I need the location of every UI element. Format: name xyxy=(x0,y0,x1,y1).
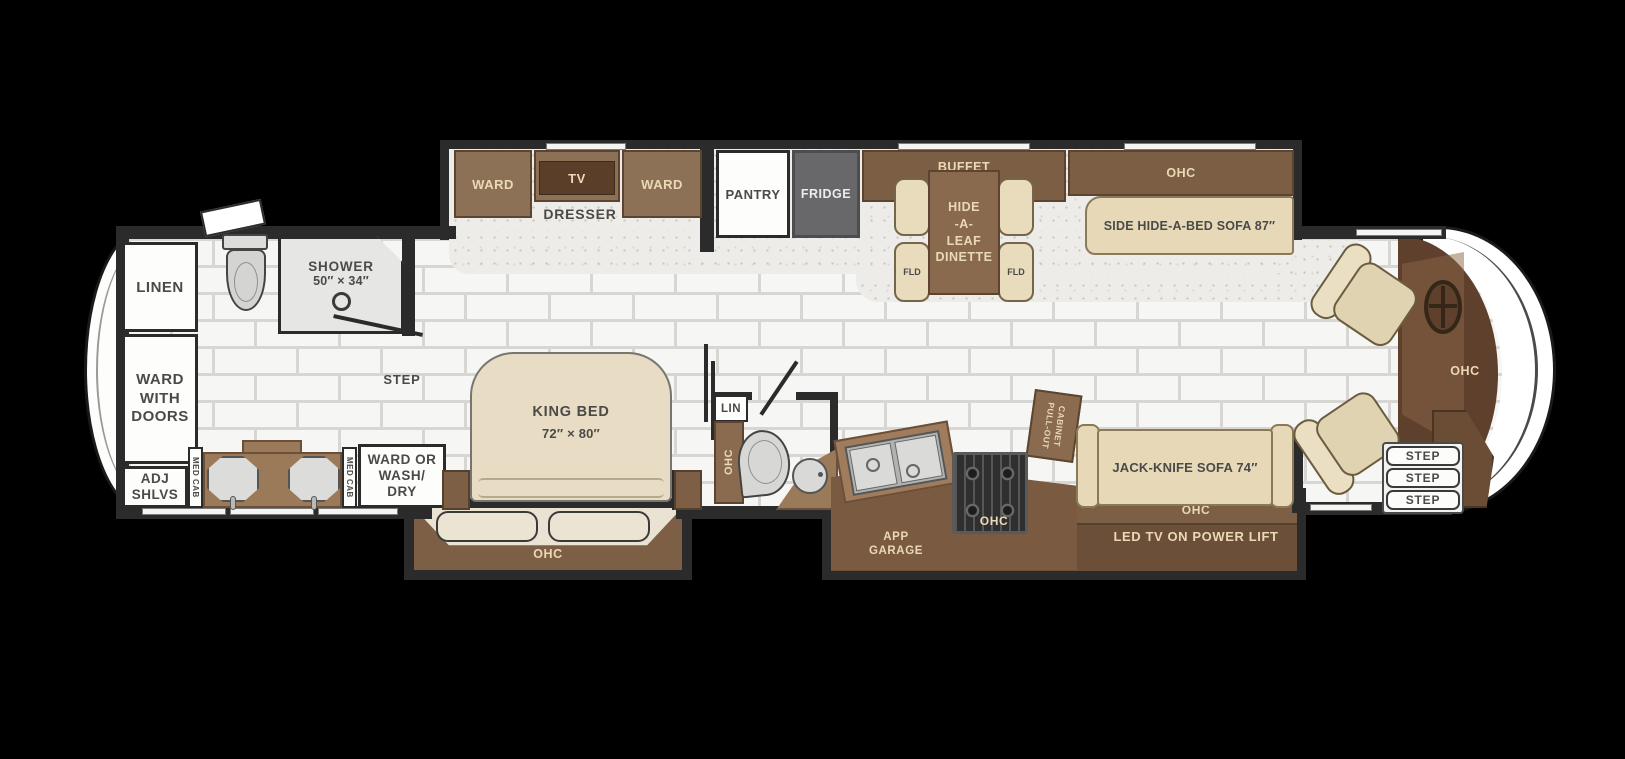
window-buffet xyxy=(898,143,1030,150)
side-hide-a-bed-sofa: SIDE HIDE-A-BED SOFA 87″ xyxy=(1085,196,1294,255)
shower-size-label: 50″ × 34″ xyxy=(313,274,369,288)
fridge: FRIDGE xyxy=(792,150,860,238)
fridge-label: FRIDGE xyxy=(801,187,851,201)
app-garage: APP GARAGE xyxy=(846,528,946,562)
jack-knife-sofa-arm-right xyxy=(1270,424,1294,508)
shower-drain xyxy=(332,292,351,311)
fld-left-label: FLD xyxy=(903,267,921,277)
steering-wheel-spoke-h xyxy=(1429,304,1457,308)
tv-label: TV xyxy=(568,171,586,186)
vanity-faucet-right xyxy=(311,496,317,510)
ward-doors-label-2: WITH xyxy=(140,390,180,409)
pocket-door-track-1 xyxy=(704,344,708,422)
king-bed-fold-line xyxy=(478,478,664,498)
dinette-chair-top-right xyxy=(998,178,1034,236)
entry-step-3: STEP xyxy=(1386,490,1460,510)
dinette-label-1: HIDE xyxy=(948,199,980,216)
nightstand-right xyxy=(674,470,702,510)
pantry-label: PANTRY xyxy=(726,187,781,202)
sofa-overhead-cabinet: OHC xyxy=(1068,150,1294,196)
linen-closet: LINEN xyxy=(122,242,198,332)
med-cab-left-label: MED CAB xyxy=(191,457,200,498)
tv-screen: TV xyxy=(539,161,615,195)
window-front-right xyxy=(1356,229,1442,236)
dresser-label: DRESSER xyxy=(510,206,650,222)
wardrobe-left-label: WARD xyxy=(472,177,514,192)
step-3-label: STEP xyxy=(1406,493,1441,507)
ward-doors-label-1: WARD xyxy=(136,371,184,390)
entry-step-1: STEP xyxy=(1386,446,1460,466)
dinette-label-3: LEAF xyxy=(947,233,982,250)
side-sofa-label: SIDE HIDE-A-BED SOFA 87″ xyxy=(1104,219,1275,233)
slideout-divider-wall xyxy=(700,148,714,252)
app-garage-label-1: APP xyxy=(883,531,908,545)
dinette-label-4: DINETTE xyxy=(936,249,993,266)
step-2-label: STEP xyxy=(1406,471,1441,485)
pull-out-cabinet: PULL-OUT CABINET xyxy=(1026,389,1083,463)
toilet-tank-rear xyxy=(222,234,268,250)
dinette-chair-bottom-right: FLD xyxy=(998,242,1034,302)
pantry: PANTRY xyxy=(716,150,790,238)
king-bed-size-label: 72″ × 80″ xyxy=(500,426,642,441)
king-bed-label: KING BED xyxy=(500,404,642,420)
bed-ohc-label: OHC xyxy=(498,547,598,561)
adj-shelves: ADJ SHLVS xyxy=(122,466,188,508)
window-rear-bottom-2 xyxy=(230,508,314,515)
ward-with-doors: WARD WITH DOORS xyxy=(122,334,198,464)
window-rear-bottom-1 xyxy=(142,508,226,515)
jack-knife-sofa: JACK-KNIFE SOFA 74″ xyxy=(1097,429,1273,506)
lin-closet: LIN xyxy=(714,395,748,422)
half-bath-sink xyxy=(792,458,828,494)
linen-label: LINEN xyxy=(136,279,184,296)
wardrobe-right-label: WARD xyxy=(641,177,683,192)
vanity-faucet-left xyxy=(230,496,236,510)
window-bedroom xyxy=(546,143,626,150)
half-bath-ohc-label: OHC xyxy=(723,450,735,476)
wash-dry-label-3: DRY xyxy=(387,484,417,500)
dinette-table: HIDE -A- LEAF DINETTE xyxy=(928,170,1000,295)
sofa-ohc-label: OHC xyxy=(1166,166,1195,180)
pillow-left xyxy=(436,511,538,542)
kitchen-ohc-label: OHC xyxy=(956,514,1032,528)
rv-floor-plan: WARD TV WARD DRESSER PANTRY FRIDGE BUFFE… xyxy=(0,0,1625,759)
med-cab-right-label: MED CAB xyxy=(345,457,354,498)
wash-dry-label-1: WARD OR xyxy=(368,452,437,468)
front-ohc-label: OHC xyxy=(1434,364,1496,378)
window-sofa xyxy=(1124,143,1256,150)
window-entry-bottom xyxy=(1310,504,1372,511)
toilet-rear-seat-line xyxy=(234,262,258,302)
med-cab-right: MED CAB xyxy=(342,447,357,508)
jack-sofa-label: JACK-KNIFE SOFA 74″ xyxy=(1112,460,1257,475)
window-rear-bottom-3 xyxy=(318,508,398,515)
kitchen-sink-bowl-right xyxy=(894,435,943,484)
step-1-label: STEP xyxy=(1406,449,1441,463)
step-rear-label: STEP xyxy=(363,372,441,387)
kitchen-sink-drain-right xyxy=(906,464,920,478)
lin-label: LIN xyxy=(721,403,741,415)
bed-slideout: OHC xyxy=(404,498,692,580)
shower-label: SHOWER xyxy=(308,259,374,274)
kitchen-sink-drain-left xyxy=(866,458,880,472)
dinette-label-2: -A- xyxy=(955,216,974,233)
med-cab-left: MED CAB xyxy=(188,447,203,508)
adj-shlvs-label-2: SHLVS xyxy=(132,487,179,503)
half-bath-faucet-dot xyxy=(818,472,823,477)
dinette-chair-bottom-left: FLD xyxy=(894,242,930,302)
ward-doors-label-3: DOORS xyxy=(131,408,189,427)
dinette-chair-top-left xyxy=(894,178,930,236)
app-garage-label-2: GARAGE xyxy=(869,545,923,559)
ward-wash-dry: WARD OR WASH/ DRY xyxy=(358,444,446,508)
adj-shlvs-label-1: ADJ xyxy=(141,471,170,487)
wash-dry-label-2: WASH/ xyxy=(379,468,426,484)
entry-step-2: STEP xyxy=(1386,468,1460,488)
nightstand-left xyxy=(442,470,470,510)
fld-right-label: FLD xyxy=(1007,267,1025,277)
pillow-right xyxy=(548,511,650,542)
